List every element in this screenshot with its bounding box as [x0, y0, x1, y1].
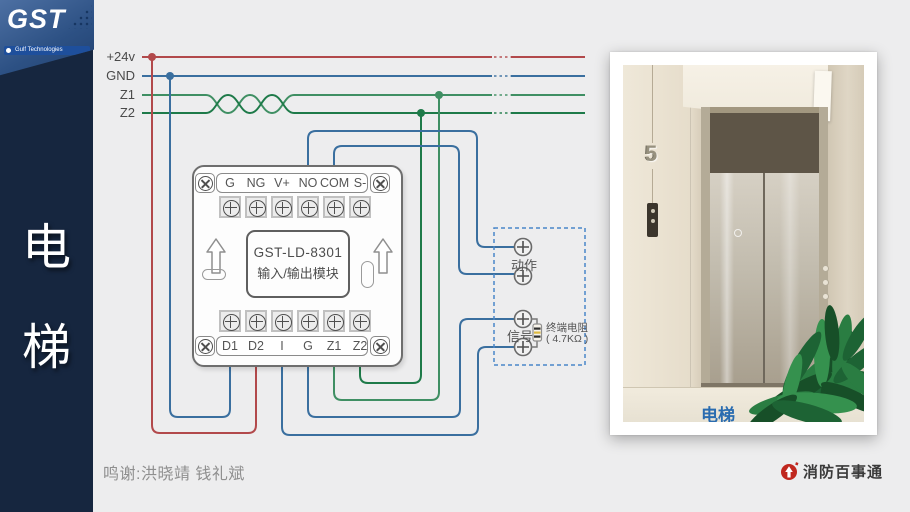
- elevator-photo: 5: [610, 52, 877, 435]
- terminal-label: V+: [268, 176, 296, 190]
- module-led-slot: [361, 261, 374, 288]
- screw-terminal-icon: [219, 310, 241, 332]
- floor-number-sign: 5: [645, 141, 657, 167]
- screw-terminal-icon: [323, 196, 345, 218]
- screw-terminal-icon: [349, 196, 371, 218]
- action-label: 动作: [509, 255, 539, 274]
- photo-caption: 电梯: [623, 401, 813, 422]
- screw-terminal-icon: [297, 196, 319, 218]
- screw-terminal-icon: [297, 310, 319, 332]
- terminal-label: Z1: [320, 339, 348, 353]
- terminal-label: S-: [346, 176, 374, 190]
- module-name: 输入/输出模块: [248, 263, 348, 282]
- module-nameplate: GST-LD-8301 输入/输出模块: [246, 230, 350, 298]
- up-arrow-icon: [373, 237, 393, 275]
- terminal-label: Z2: [346, 339, 374, 353]
- screw-terminal-icon: [271, 310, 293, 332]
- junction-dot: [435, 91, 443, 99]
- screw-terminal-icon: [245, 310, 267, 332]
- terminal-label: NO: [294, 176, 322, 190]
- mounting-hole-icon: [195, 336, 215, 356]
- terminal-label: G: [216, 176, 244, 190]
- terminal-label: D1: [216, 339, 244, 353]
- mounting-hole-icon: [195, 173, 215, 193]
- screw-terminal-icon: [323, 310, 345, 332]
- terminal-label: D2: [242, 339, 270, 353]
- screw-terminal-icon: [219, 196, 241, 218]
- fire-brand-icon: [780, 462, 799, 481]
- brand-name: 消防百事通: [803, 461, 883, 482]
- screw-terminal-icon: [349, 310, 371, 332]
- junction-dot: [148, 53, 156, 61]
- junction-dot: [166, 72, 174, 80]
- elevator-photo-image: 5: [623, 65, 864, 422]
- signal-label: 信号: [505, 326, 535, 345]
- junction-dot: [417, 109, 425, 117]
- elevator-ceiling-lights: [709, 113, 820, 175]
- credits-text: 鸣谢:洪晓靖 钱礼斌: [103, 460, 245, 484]
- terminal-label: G: [294, 339, 322, 353]
- module-led-slot: [202, 269, 226, 280]
- terminal-label: COM: [320, 176, 348, 190]
- hall-call-panel: [647, 203, 658, 237]
- screw-terminal-icon: [271, 196, 293, 218]
- terminal-label: I: [268, 339, 296, 353]
- terminal-label: NG: [242, 176, 270, 190]
- resistor-value-label: ( 4.7KΩ ): [546, 333, 588, 345]
- module-gst-ld-8301: G NG V+ NO COM S- GST-LD-8301 输入/输出模块 D1: [192, 165, 403, 367]
- module-model: GST-LD-8301: [248, 245, 348, 260]
- page: 电 梯 GST Gulf Technologies +24v GND Z1 Z2: [0, 0, 910, 512]
- screw-terminal-icon: [245, 196, 267, 218]
- brand-logo: 消防百事通: [780, 461, 883, 482]
